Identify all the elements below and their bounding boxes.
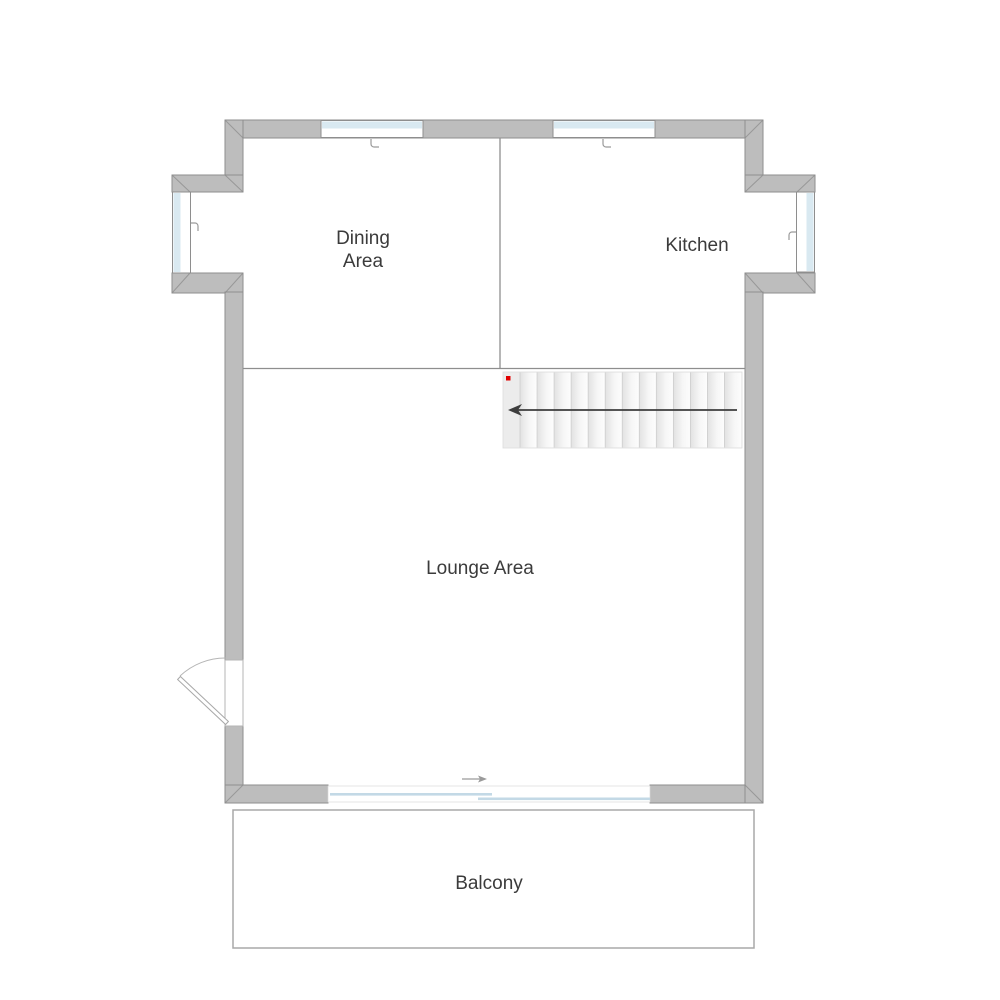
- staircase: [503, 372, 742, 448]
- wall-right-lower: [745, 292, 763, 803]
- wall-bay-right-bottom: [745, 273, 815, 293]
- exterior-walls: [172, 120, 815, 803]
- entry-door: [178, 658, 243, 726]
- sliding-panel-left: [330, 793, 492, 796]
- window-handle-icon: [603, 139, 611, 147]
- slide-direction-arrow: [462, 776, 487, 783]
- dining-bay-window-left: [173, 192, 199, 273]
- dining-area-label-line2: Area: [343, 251, 384, 272]
- wall-left-middle: [225, 292, 243, 661]
- floor-plan-canvas: Dining Area Kitchen Lounge Area Balcony: [0, 0, 1000, 1000]
- door-opening: [225, 660, 243, 726]
- dining-area-label: Dining: [336, 228, 390, 249]
- floor-plan-drawing: Dining Area Kitchen Lounge Area Balcony: [0, 0, 1000, 1000]
- sliding-door: [328, 776, 650, 803]
- dining-top-window: [321, 121, 423, 148]
- kitchen-bay-window-right: [789, 192, 815, 272]
- stair-start-marker: [506, 376, 511, 381]
- door-leaf: [178, 677, 229, 725]
- kitchen-top-window: [553, 121, 655, 148]
- sliding-panel-right: [478, 798, 650, 801]
- window-handle-icon: [191, 223, 198, 231]
- wall-top: [225, 120, 763, 138]
- window-handle-icon: [371, 139, 379, 147]
- wall-bay-right-top: [745, 175, 815, 192]
- balcony-label: Balcony: [455, 873, 523, 894]
- wall-bay-left-top: [172, 175, 243, 192]
- wall-bay-left-bottom: [172, 273, 243, 293]
- wall-miter-joints: [172, 120, 815, 803]
- lounge-area-label: Lounge Area: [426, 558, 534, 579]
- kitchen-label: Kitchen: [665, 235, 728, 256]
- window-handle-icon: [789, 232, 796, 240]
- door-swing-arc: [180, 658, 226, 676]
